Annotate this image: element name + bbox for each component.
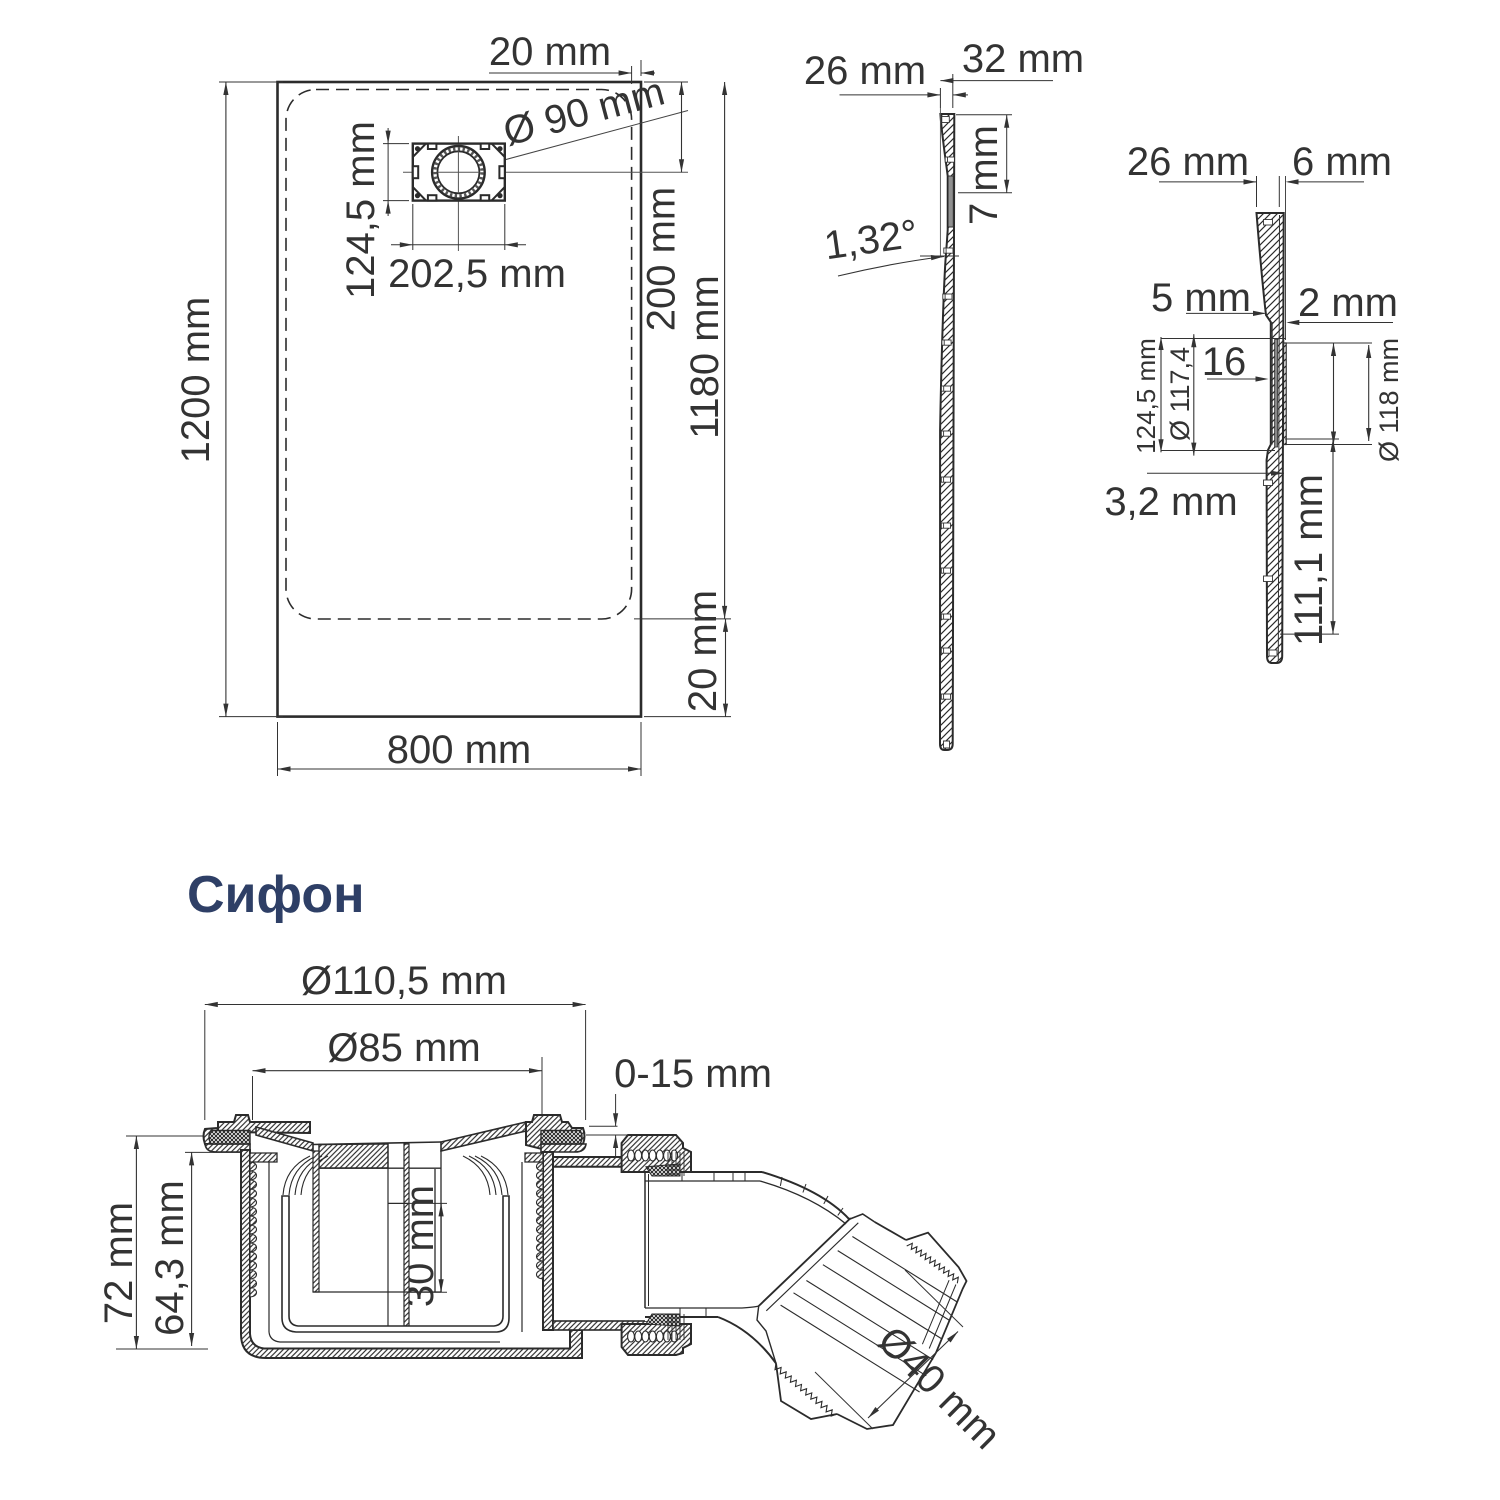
svg-text:Сифон: Сифон xyxy=(187,866,365,924)
svg-text:64,3 mm: 64,3 mm xyxy=(148,1180,192,1336)
svg-text:1180 mm: 1180 mm xyxy=(683,275,727,439)
svg-text:7 mm: 7 mm xyxy=(962,125,1006,225)
svg-text:202,5 mm: 202,5 mm xyxy=(388,252,566,296)
svg-text:72 mm: 72 mm xyxy=(97,1202,141,1324)
svg-text:16: 16 xyxy=(1202,340,1247,384)
svg-text:20 mm: 20 mm xyxy=(489,30,611,74)
svg-text:Ø85 mm: Ø85 mm xyxy=(327,1026,480,1070)
svg-text:32 mm: 32 mm xyxy=(962,37,1084,81)
svg-text:1200 mm: 1200 mm xyxy=(174,297,218,464)
svg-text:Ø 117,4: Ø 117,4 xyxy=(1165,347,1195,441)
svg-text:3,2 mm: 3,2 mm xyxy=(1104,480,1237,524)
svg-text:6 mm: 6 mm xyxy=(1292,140,1392,184)
svg-text:26 mm: 26 mm xyxy=(1127,140,1249,184)
svg-text:124,5 mm: 124,5 mm xyxy=(339,121,383,299)
svg-text:20 mm: 20 mm xyxy=(681,590,725,712)
svg-text:Ø 118 mm: Ø 118 mm xyxy=(1374,338,1404,462)
svg-text:5 mm: 5 mm xyxy=(1151,276,1251,320)
svg-text:124,5 mm: 124,5 mm xyxy=(1131,338,1161,454)
svg-text:2 mm: 2 mm xyxy=(1298,281,1398,325)
svg-text:0-15 mm: 0-15 mm xyxy=(614,1052,772,1096)
svg-text:Ø110,5 mm: Ø110,5 mm xyxy=(301,959,507,1003)
svg-text:111,1 mm: 111,1 mm xyxy=(1287,474,1331,646)
svg-text:200 mm: 200 mm xyxy=(640,187,684,332)
svg-text:800 mm: 800 mm xyxy=(387,728,532,772)
svg-text:26 mm: 26 mm xyxy=(804,49,926,93)
